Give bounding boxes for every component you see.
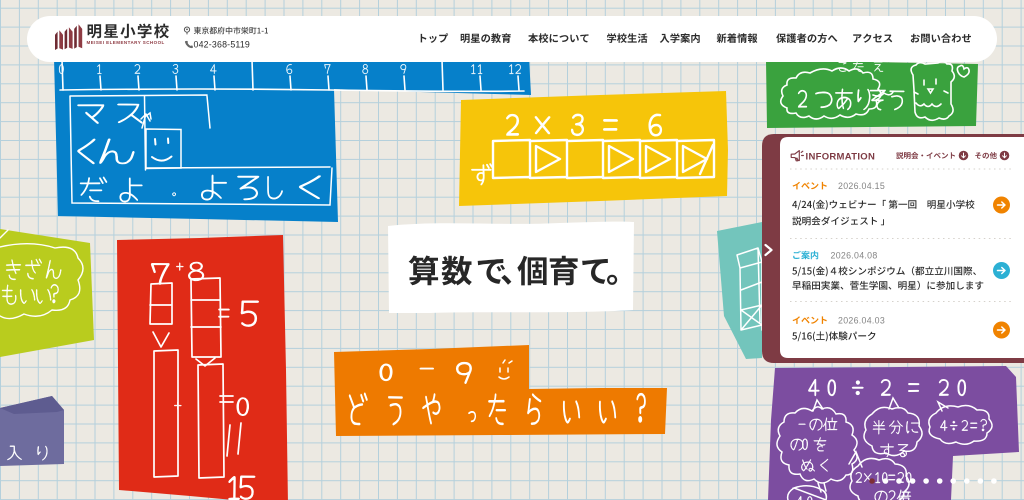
svg-text:2026.04.08: 2026.04.08 (831, 251, 878, 261)
svg-text:042-368-5119: 042-368-5119 (194, 40, 251, 50)
svg-text:MEISEI ELEMENTARY SCHOOL: MEISEI ELEMENTARY SCHOOL (87, 40, 165, 45)
svg-text:INFORMATION: INFORMATION (806, 152, 876, 163)
svg-text:2026.04.03: 2026.04.03 (838, 316, 885, 326)
svg-text:2026.04.15: 2026.04.15 (838, 181, 885, 191)
